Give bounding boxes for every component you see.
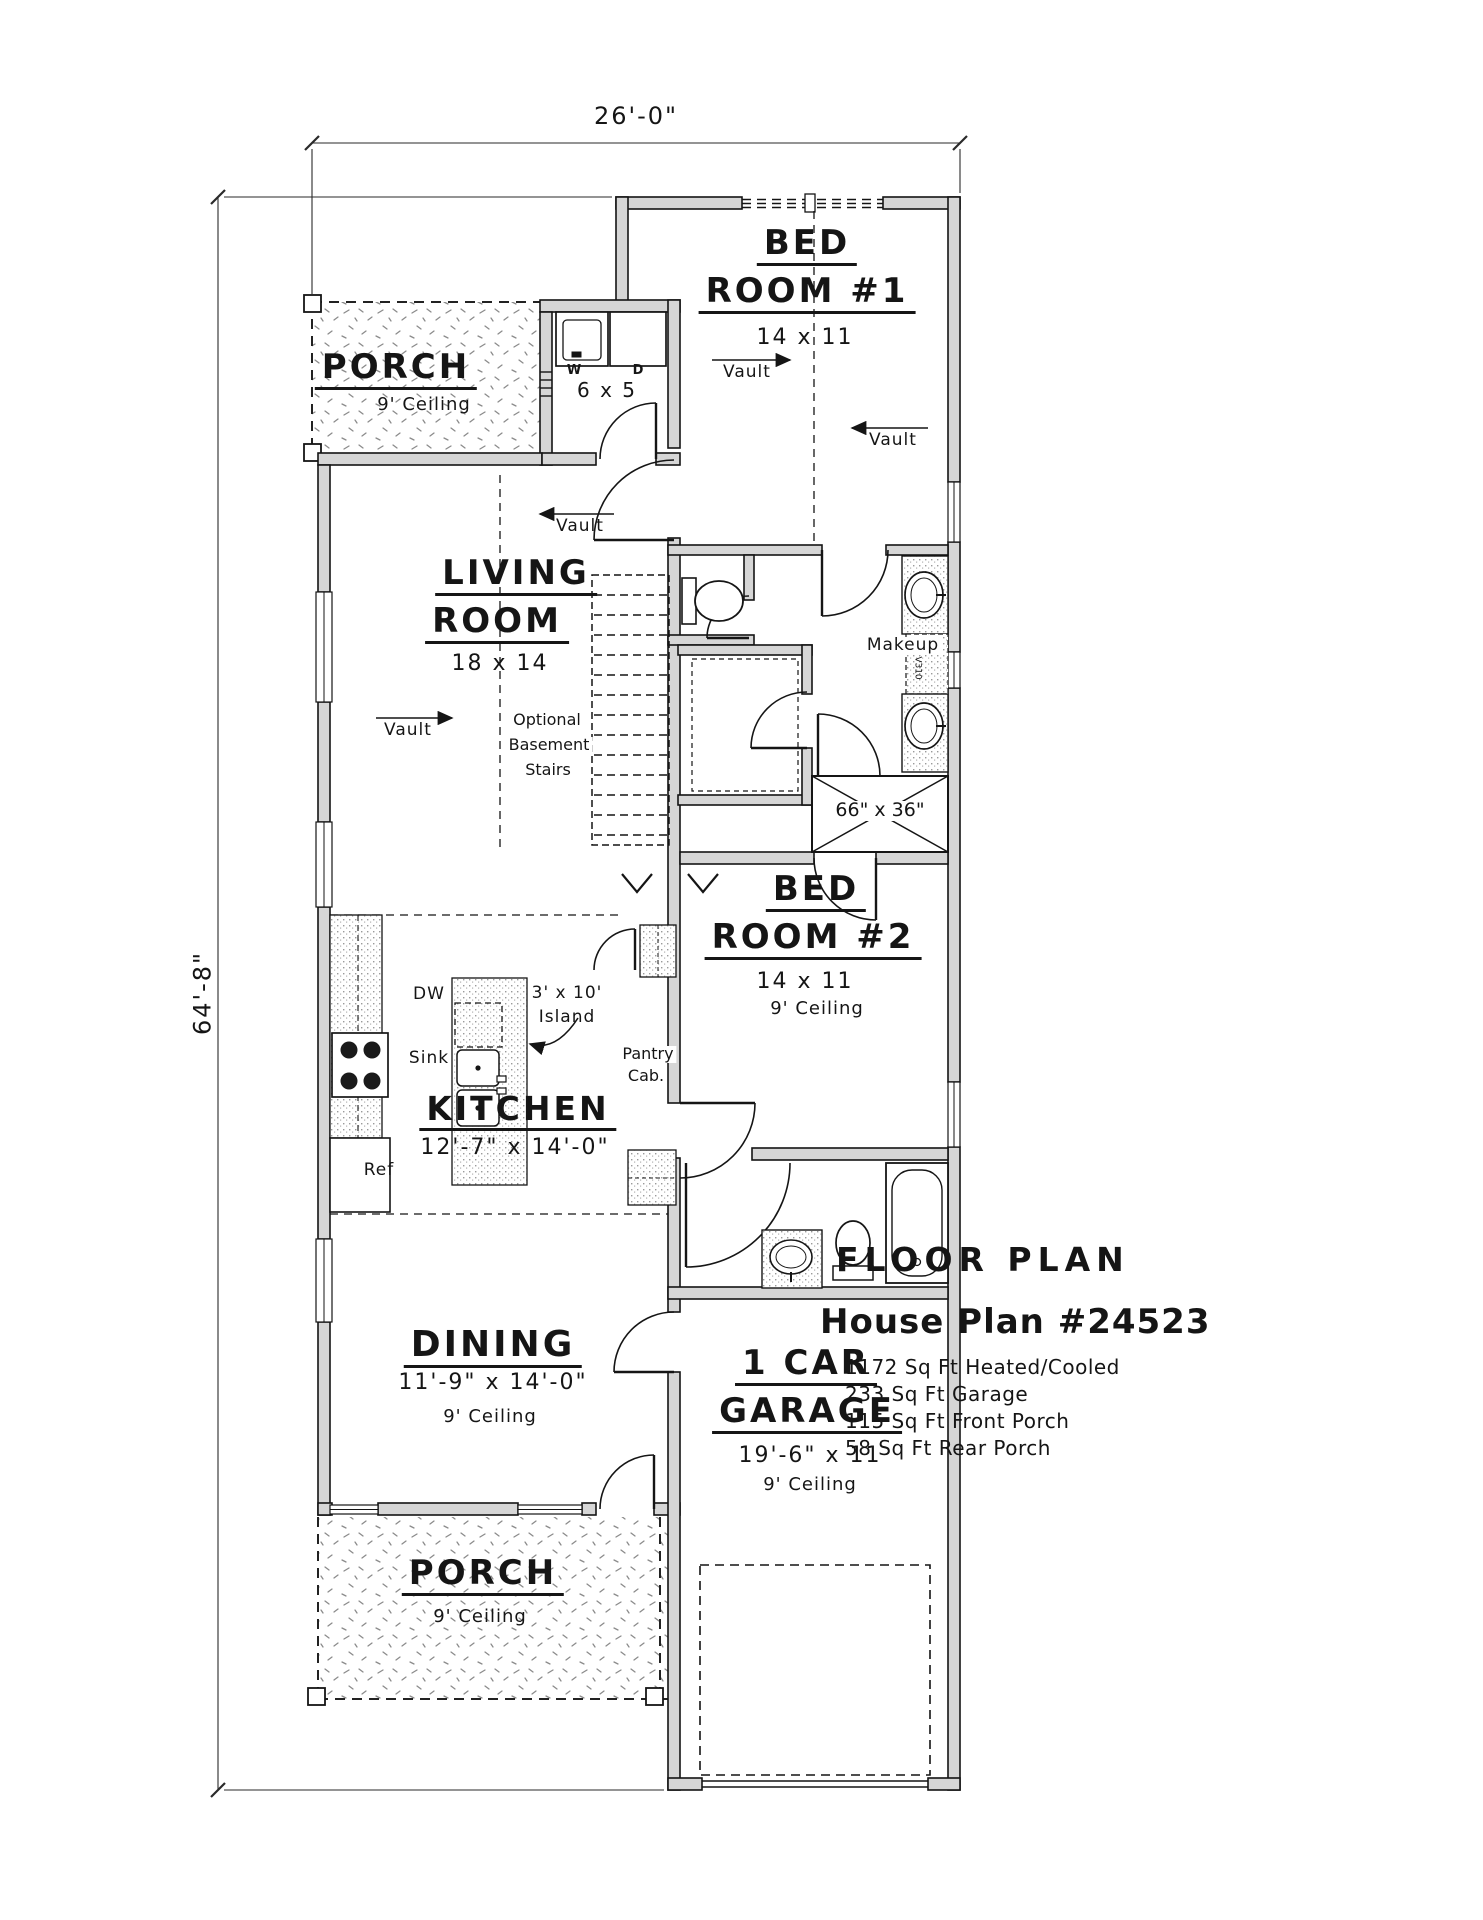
porch-rear-ceiling: 9' Ceiling (433, 1608, 527, 1627)
vault-label-living-a: Vault (556, 518, 604, 536)
bedroom1-name-line1: BED (757, 226, 857, 266)
dimension-width-label: 26'-0" (594, 104, 678, 129)
kitchen-size-label: 12'-7" x 14'-0" (420, 1136, 609, 1159)
bedroom2-name-line2: ROOM #2 (705, 920, 922, 960)
stairs-note-line1: Optional (510, 712, 584, 729)
bedroom1-size-label: 14 x 11 (757, 326, 854, 349)
shower-size-label: 66" x 36" (832, 801, 927, 821)
bedroom2-name-line1: BED (766, 872, 866, 912)
stairs-note-line2: Basement (506, 737, 593, 754)
porch-front-ceiling: 9' Ceiling (377, 396, 471, 415)
stat-heated-cooled: 1172 Sq Ft Heated/Cooled (845, 1354, 1120, 1381)
stat-front-porch: 115 Sq Ft Front Porch (845, 1408, 1069, 1435)
bedroom2-ceiling: 9' Ceiling (770, 1000, 864, 1019)
makeup-cabinet-label: V310 (912, 656, 921, 679)
bedroom2-size-label: 14 x 11 (757, 970, 854, 993)
plan-number: House Plan #24523 (820, 1302, 1211, 1342)
island-label-line1: 3' x 10' (532, 985, 603, 1003)
stairs-note-line3: Stairs (522, 762, 574, 779)
garage-door (700, 1565, 930, 1787)
washer-label: W (567, 364, 581, 378)
laundry-size-label: 6 x 5 (577, 380, 637, 401)
makeup-label: Makeup (864, 637, 942, 655)
kitchen-name: KITCHEN (419, 1092, 616, 1131)
pantry-label-line2: Cab. (625, 1068, 667, 1085)
dryer-label: D (633, 364, 644, 378)
dining-size-label: 11'-9" x 14'-0" (398, 1371, 587, 1394)
pantry-label-line1: Pantry (619, 1046, 676, 1063)
dining-name: DINING (404, 1326, 582, 1368)
porch-rear-label: PORCH (402, 1556, 564, 1596)
island-label-line2: Island (539, 1009, 596, 1027)
basement-stairs (592, 575, 669, 845)
porch-front-label: PORCH (315, 350, 477, 390)
sink-label: Sink (409, 1050, 449, 1068)
living-name-line1: LIVING (435, 556, 597, 596)
garage-ceiling: 9' Ceiling (763, 1476, 857, 1495)
vault-label-bedroom1-a: Vault (723, 364, 771, 382)
vault-label-living-b: Vault (384, 722, 432, 740)
stat-garage: 233 Sq Ft Garage (845, 1381, 1028, 1408)
vault-label-bedroom1-b: Vault (869, 432, 917, 450)
dining-ceiling: 9' Ceiling (443, 1408, 537, 1427)
living-size-label: 18 x 14 (452, 652, 549, 675)
floor-plan-page: 26'-0" 64'-8" PORCH 9' Ceiling W D 6 x 5… (0, 0, 1483, 1920)
living-name-line2: ROOM (425, 604, 569, 644)
sheet-title: FLOOR PLAN (836, 1240, 1130, 1279)
refrigerator-label: Ref (364, 1162, 395, 1180)
dimension-height-label: 64'-8" (190, 951, 215, 1035)
stat-rear-porch: 58 Sq Ft Rear Porch (845, 1435, 1051, 1462)
dishwasher-label: DW (413, 986, 445, 1004)
bedroom1-name-line2: ROOM #1 (699, 274, 916, 314)
